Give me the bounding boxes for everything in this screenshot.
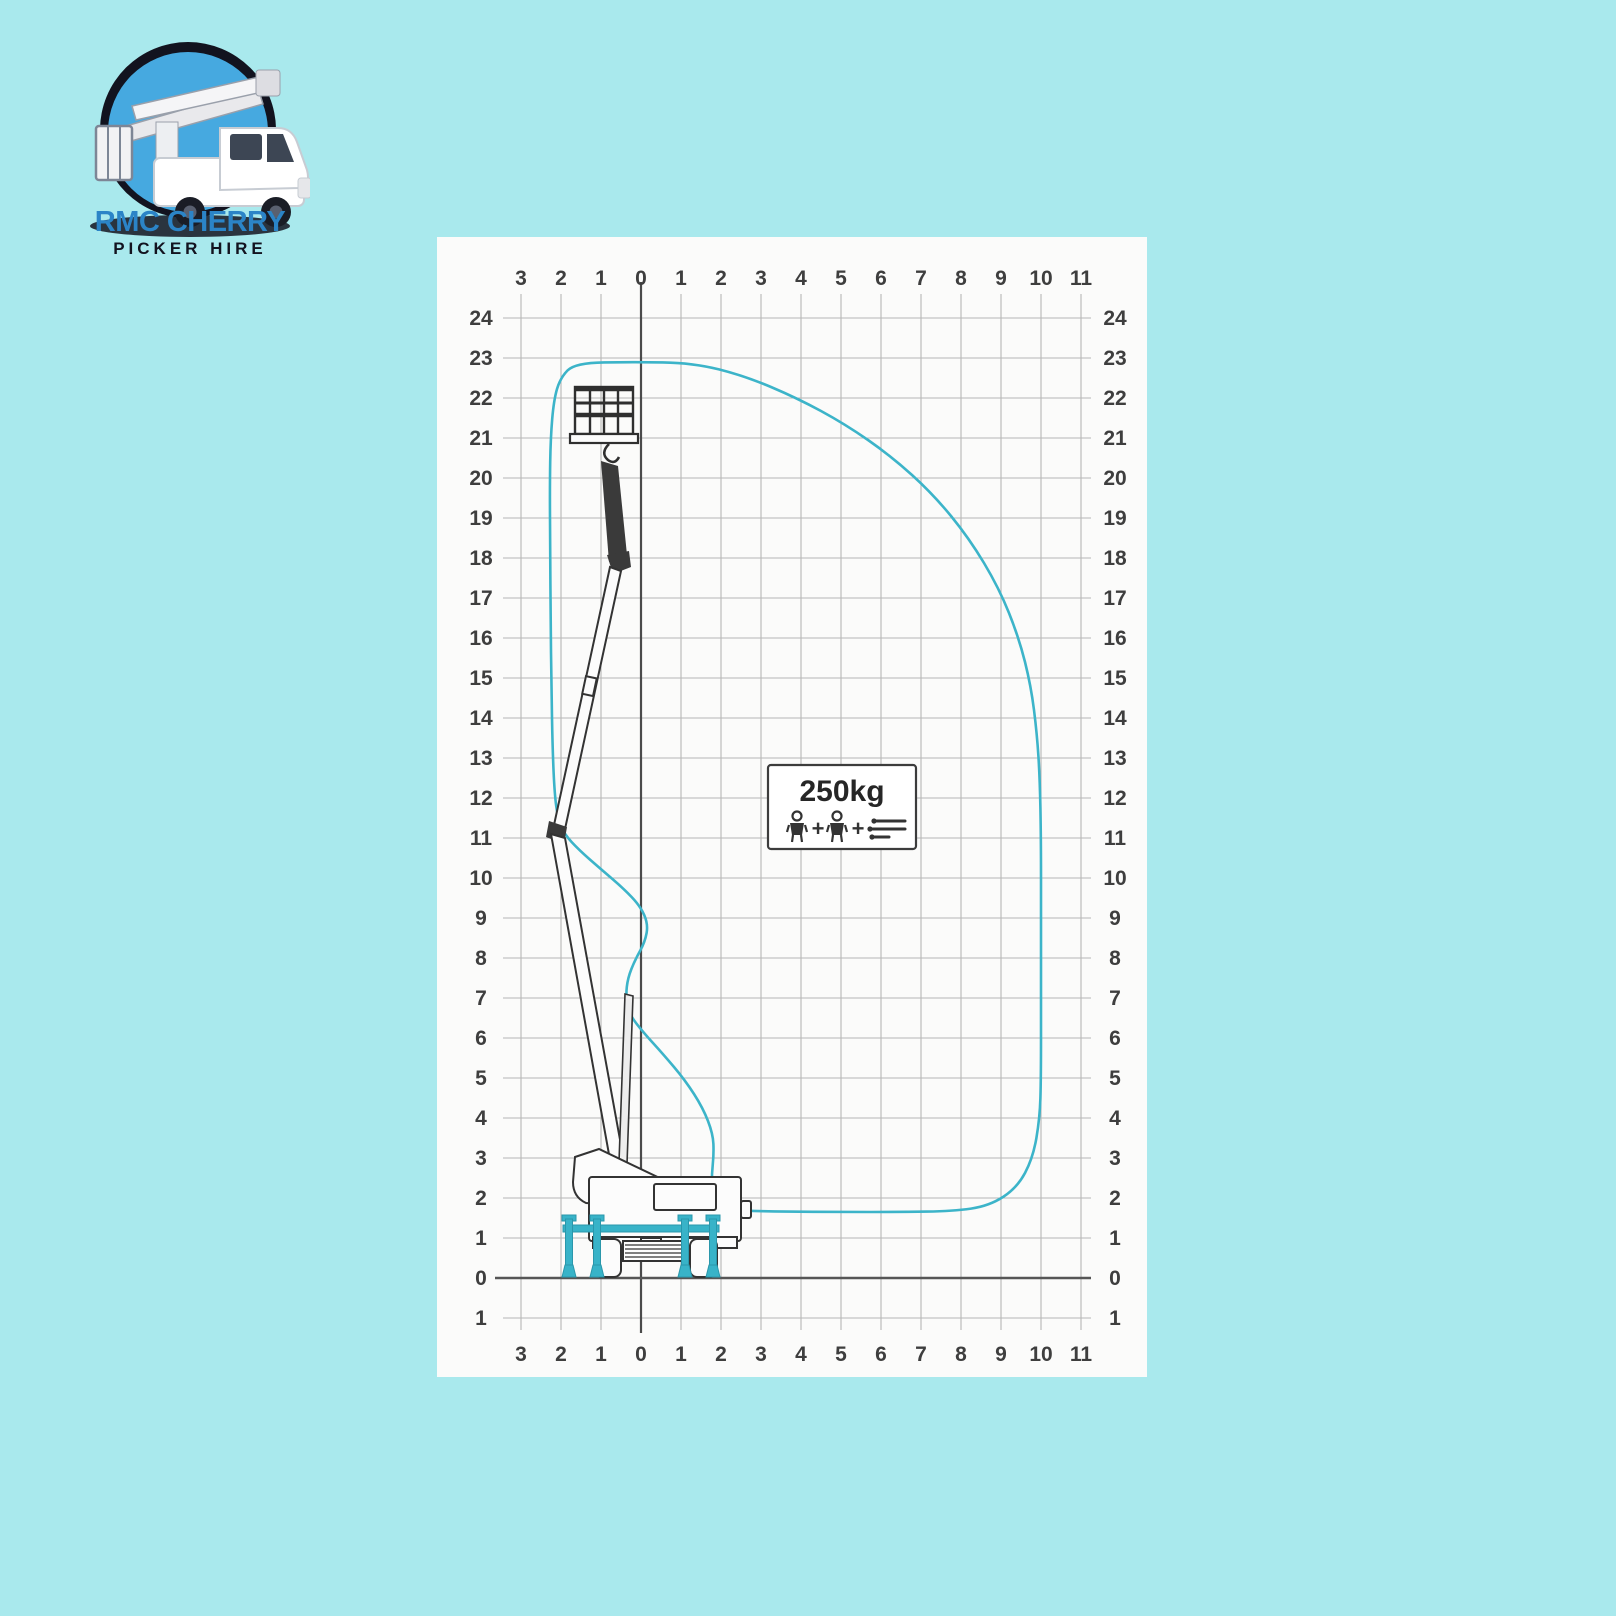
y-axis-label-left: 18 — [469, 547, 493, 570]
y-axis-label-right: 21 — [1103, 427, 1127, 450]
plus-sign: + — [812, 816, 825, 841]
x-axis-label-bottom: 1 — [595, 1343, 607, 1366]
y-axis-label-right: 6 — [1109, 1027, 1121, 1050]
y-axis-label-left: 8 — [475, 947, 487, 970]
y-axis-label-right: 17 — [1103, 587, 1126, 610]
y-axis-label-left: 0 — [475, 1267, 487, 1290]
y-axis-label-left: 14 — [469, 707, 493, 730]
jib-arm — [601, 461, 627, 562]
y-axis-label-right: 4 — [1109, 1107, 1121, 1130]
y-axis-label-left: 5 — [475, 1067, 487, 1090]
y-axis-label-right: 3 — [1109, 1147, 1121, 1170]
y-axis-label-left: 3 — [475, 1147, 487, 1170]
x-axis-label-bottom: 8 — [955, 1343, 967, 1366]
y-axis-label-right: 2 — [1109, 1187, 1121, 1210]
y-axis-label-left: 6 — [475, 1027, 487, 1050]
axle-hatch — [623, 1241, 687, 1261]
x-axis-label-bottom: 6 — [875, 1343, 887, 1366]
page-background: RMC CHERRY PICKER HIRE 33221100112233445… — [0, 0, 1616, 1616]
y-axis-label-left: 11 — [470, 827, 493, 850]
y-axis-label-right: 5 — [1109, 1067, 1121, 1090]
y-axis-label-left: 1 — [475, 1227, 487, 1250]
chassis-knob — [741, 1201, 751, 1218]
x-axis-label-top: 3 — [515, 267, 527, 290]
y-axis-label-right: 24 — [1103, 307, 1127, 330]
y-axis-label-left: 21 — [469, 427, 493, 450]
y-axis-label-right: 7 — [1109, 987, 1121, 1010]
y-axis-label-left: 24 — [469, 307, 493, 330]
y-axis-label-right: 0 — [1109, 1267, 1121, 1290]
y-axis-label-right: 1 — [1109, 1227, 1121, 1250]
x-axis-label-bottom: 2 — [715, 1343, 727, 1366]
x-axis-label-bottom: 3 — [515, 1343, 527, 1366]
x-axis-label-top: 8 — [955, 267, 967, 290]
y-axis-label-left: 20 — [469, 467, 492, 490]
y-axis-label-right: 8 — [1109, 947, 1121, 970]
y-axis-label-right: 16 — [1103, 627, 1126, 650]
x-axis-label-bottom: 10 — [1029, 1343, 1052, 1366]
y-axis-label-left: 22 — [469, 387, 492, 410]
x-axis-label-top: 11 — [1070, 267, 1093, 290]
front-bumper — [298, 178, 310, 198]
y-axis-label-left: 12 — [469, 787, 492, 810]
plus-sign: + — [852, 816, 865, 841]
diagram-panel: 3322110011223344556677889910101111242423… — [437, 237, 1147, 1377]
boom-collar — [582, 676, 597, 696]
x-axis-label-bottom: 4 — [795, 1343, 807, 1366]
y-axis-label-right: 12 — [1103, 787, 1126, 810]
x-axis-label-top: 3 — [755, 267, 767, 290]
y-axis-label-right: 15 — [1103, 667, 1127, 690]
y-axis-label-right: 14 — [1103, 707, 1127, 730]
x-axis-label-bottom: 7 — [915, 1343, 927, 1366]
x-axis-label-top: 2 — [555, 267, 567, 290]
x-axis-label-top: 7 — [915, 267, 927, 290]
y-axis-label-right: 13 — [1103, 747, 1126, 770]
outrigger-leg — [562, 1215, 576, 1277]
y-axis-label-right: 9 — [1109, 907, 1121, 930]
y-axis-label-right: 1 — [1109, 1307, 1121, 1330]
x-axis-label-bottom: 2 — [555, 1343, 567, 1366]
x-axis-label-bottom: 3 — [755, 1343, 767, 1366]
y-axis-label-right: 22 — [1103, 387, 1126, 410]
boom-head — [256, 70, 280, 96]
basket-hanger — [604, 444, 619, 462]
x-axis-label-top: 2 — [715, 267, 727, 290]
x-axis-label-top: 0 — [635, 267, 647, 290]
lower-boom — [551, 834, 627, 1182]
y-axis-label-right: 11 — [1104, 827, 1127, 850]
logo-title: RMC CHERRY — [60, 206, 320, 239]
x-axis-label-bottom: 9 — [995, 1343, 1007, 1366]
x-axis-label-top: 9 — [995, 267, 1007, 290]
y-axis-label-left: 4 — [475, 1107, 487, 1130]
x-axis-label-bottom: 0 — [635, 1343, 647, 1366]
y-axis-label-right: 10 — [1103, 867, 1126, 890]
y-axis-label-left: 2 — [475, 1187, 487, 1210]
x-axis-label-top: 1 — [595, 267, 607, 290]
outrigger-beam — [563, 1225, 719, 1232]
y-axis-label-right: 23 — [1103, 347, 1126, 370]
y-axis-label-left: 13 — [469, 747, 492, 770]
machine-illustration — [546, 387, 751, 1277]
capacity-box: 250kg + + — [768, 765, 916, 849]
upper-boom — [554, 567, 621, 829]
y-axis-label-right: 20 — [1103, 467, 1126, 490]
capacity-label: 250kg — [799, 775, 884, 808]
x-axis-label-bottom: 11 — [1070, 1343, 1093, 1366]
y-axis-label-left: 17 — [469, 587, 492, 610]
x-axis-label-top: 4 — [795, 267, 807, 290]
y-axis-label-left: 15 — [469, 667, 493, 690]
x-axis-label-top: 10 — [1029, 267, 1052, 290]
diagram-svg: 3322110011223344556677889910101111242423… — [437, 237, 1147, 1377]
x-axis-label-bottom: 5 — [835, 1343, 847, 1366]
x-axis-label-bottom: 1 — [675, 1343, 687, 1366]
x-axis-label-top: 1 — [675, 267, 687, 290]
cab-window — [230, 134, 262, 160]
y-axis-label-left: 23 — [469, 347, 492, 370]
x-axis-label-top: 5 — [835, 267, 847, 290]
y-axis-label-right: 18 — [1103, 547, 1127, 570]
y-axis-label-left: 9 — [475, 907, 487, 930]
x-axis-label-top: 6 — [875, 267, 887, 290]
chassis-window — [654, 1184, 716, 1210]
y-axis-label-left: 16 — [469, 627, 492, 650]
logo-basket — [96, 126, 132, 180]
y-axis-label-right: 19 — [1103, 507, 1126, 530]
y-axis-label-left: 19 — [469, 507, 492, 530]
y-axis-label-left: 7 — [475, 987, 487, 1010]
y-axis-label-left: 1 — [475, 1307, 487, 1330]
y-axis-label-left: 10 — [469, 867, 492, 890]
logo-subtitle: PICKER HIRE — [60, 239, 320, 259]
